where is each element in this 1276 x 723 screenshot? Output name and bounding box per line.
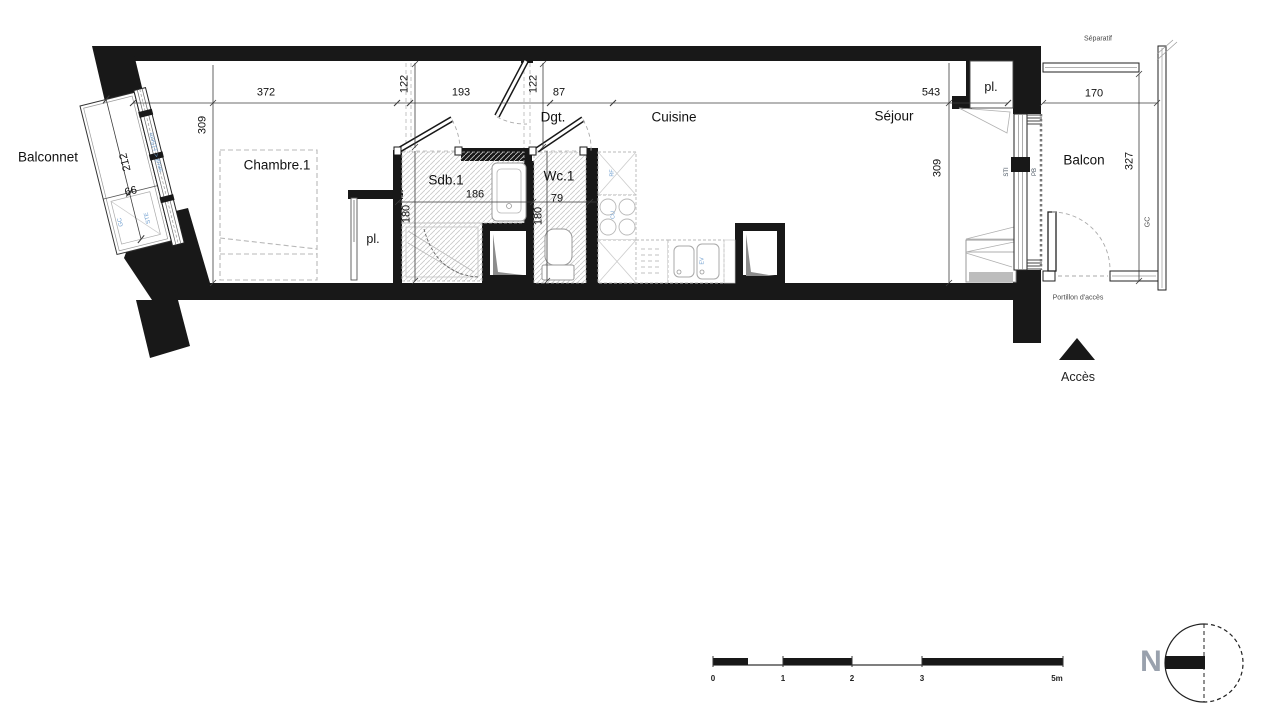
floor-plan-page: Balconnet Chambre.1 pl. Sdb.1 Wc.1 Dgt. … bbox=[0, 0, 1276, 723]
dim-180-sdb: 180 bbox=[402, 205, 413, 223]
cabinet-sejour bbox=[966, 227, 1016, 282]
room-label-cuisine: Cuisine bbox=[651, 110, 696, 124]
room-label-chambre: Chambre.1 bbox=[244, 158, 311, 172]
technical-shaft-kitchen bbox=[735, 223, 785, 283]
dim-309-left: 309 bbox=[198, 116, 209, 134]
bathroom-door bbox=[394, 119, 462, 155]
scale-tick-0: 0 bbox=[711, 675, 715, 683]
room-label-sejour: Séjour bbox=[874, 109, 913, 123]
north-letter: N bbox=[1140, 647, 1162, 677]
pb-label: PB bbox=[1032, 168, 1038, 176]
floor-plan-drawing bbox=[0, 0, 1276, 723]
portillon-label: Portillon d'accès bbox=[1053, 295, 1104, 302]
room-label-closet-sejour: pl. bbox=[984, 81, 997, 94]
dim-193: 193 bbox=[452, 88, 470, 99]
sink-label: EV bbox=[700, 257, 706, 264]
technical-shaft-bathroom bbox=[482, 223, 534, 283]
sti-label: STI bbox=[1004, 167, 1010, 176]
separatif-label: Séparatif bbox=[1084, 36, 1112, 43]
dim-122-left: 122 bbox=[400, 75, 411, 93]
dim-180-wc: 180 bbox=[534, 207, 545, 225]
room-label-wc: Wc.1 bbox=[544, 169, 575, 183]
scale-tick-2: 2 bbox=[850, 675, 854, 683]
dim-186: 186 bbox=[466, 190, 484, 201]
dim-543: 543 bbox=[922, 88, 940, 99]
fridge-label: RF bbox=[610, 169, 616, 176]
bay-window bbox=[1011, 114, 1042, 270]
scale-tick-1: 1 bbox=[781, 675, 785, 683]
scale-bar bbox=[713, 656, 1063, 667]
cooktop-label: CU bbox=[611, 211, 617, 219]
north-compass bbox=[1165, 624, 1243, 702]
access-arrow bbox=[1059, 338, 1095, 360]
room-label-closet-chambre: pl. bbox=[366, 233, 379, 246]
dim-87: 87 bbox=[553, 88, 565, 99]
dim-122-right: 122 bbox=[529, 75, 540, 93]
wc-door bbox=[529, 119, 591, 155]
balconnet-structure bbox=[79, 86, 185, 259]
dim-327: 327 bbox=[1125, 152, 1136, 170]
scale-tick-3: 3 bbox=[920, 675, 924, 683]
room-label-balconnet: Balconnet bbox=[18, 150, 78, 164]
dim-170: 170 bbox=[1085, 89, 1103, 100]
room-label-dgt: Dgt. bbox=[541, 110, 566, 124]
washbasin bbox=[492, 163, 526, 221]
access-label: Accès bbox=[1061, 371, 1095, 384]
room-label-sdb: Sdb.1 bbox=[428, 173, 463, 187]
dim-79: 79 bbox=[551, 194, 563, 205]
room-label-balcon: Balcon bbox=[1063, 153, 1104, 167]
kitchen-units bbox=[598, 152, 735, 283]
gc-right-label: GC bbox=[1145, 217, 1152, 228]
scale-tick-5m: 5m bbox=[1051, 675, 1063, 683]
dim-372: 372 bbox=[257, 88, 275, 99]
dim-309-right: 309 bbox=[933, 159, 944, 177]
closet-chambre bbox=[351, 198, 357, 280]
entry-door bbox=[497, 54, 533, 148]
